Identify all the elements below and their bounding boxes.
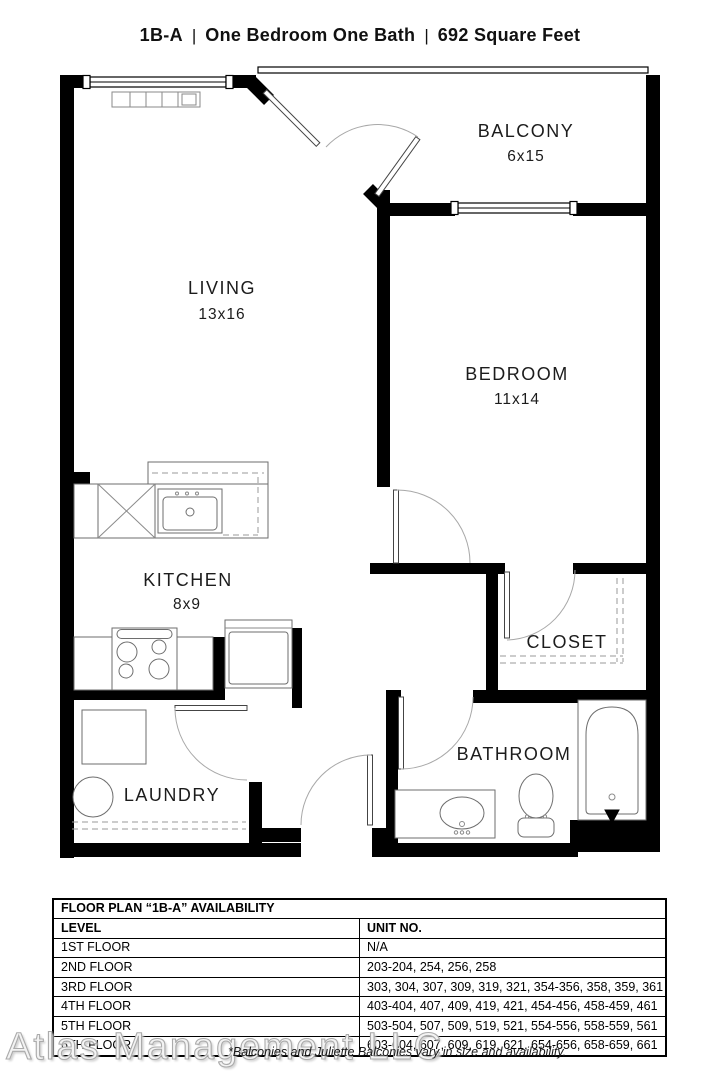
- stove: [74, 628, 213, 690]
- balcony-door: [263, 90, 420, 197]
- units-cell: N/A: [360, 938, 667, 958]
- table-row: 3RD FLOOR 303, 304, 307, 309, 319, 321, …: [53, 977, 666, 997]
- dishwasher: [98, 484, 155, 538]
- plan-description: One Bedroom One Bath: [205, 25, 415, 46]
- units-cell: 403-404, 407, 409, 419, 421, 454-456, 45…: [360, 997, 667, 1017]
- balcony-dims: 6x15: [507, 148, 545, 165]
- bathtub: [578, 700, 646, 823]
- level-cell: 3RD FLOOR: [53, 977, 360, 997]
- closet-label: CLOSET: [526, 632, 607, 652]
- floor-plan-drawing: LIVING 13x16 BALCONY 6x15 BEDROOM 11x14 …: [0, 60, 720, 875]
- title-separator: |: [424, 26, 428, 46]
- units-cell: 203-204, 254, 256, 258: [360, 958, 667, 978]
- laundry-door: [175, 706, 247, 781]
- plan-code: 1B-A: [140, 25, 183, 46]
- closet-door: [505, 570, 576, 640]
- laundry-shelf: [72, 822, 246, 829]
- availability-title-row: FLOOR PLAN “1B-A” AVAILABILITY: [53, 899, 666, 919]
- bedroom-window: [451, 202, 577, 215]
- laundry-label: LAUNDRY: [124, 785, 220, 805]
- refrigerator: [225, 620, 292, 688]
- bedroom-dims: 11x14: [494, 391, 540, 408]
- kitchen-dims: 8x9: [173, 596, 201, 613]
- bathroom-label: BATHROOM: [457, 744, 572, 764]
- balcony-railing: [258, 67, 648, 73]
- level-cell: 2ND FLOOR: [53, 958, 360, 978]
- level-cell: 4TH FLOOR: [53, 997, 360, 1017]
- toilet: [518, 774, 554, 837]
- bedroom-door: [394, 490, 471, 563]
- balcony-note: *Balconies and Juliette Balconies vary i…: [228, 1045, 566, 1059]
- page-title: 1B-A | One Bedroom One Bath | 692 Square…: [0, 25, 720, 46]
- kitchen-label: KITCHEN: [143, 570, 233, 590]
- vanity-sink: [395, 790, 495, 838]
- washer: [82, 710, 146, 764]
- availability-title: FLOOR PLAN “1B-A” AVAILABILITY: [53, 899, 666, 919]
- title-separator: |: [192, 26, 196, 46]
- table-row: 4TH FLOOR 403-404, 407, 409, 419, 421, 4…: [53, 997, 666, 1017]
- living-label: LIVING: [188, 278, 256, 298]
- plan-area: 692 Square Feet: [438, 25, 581, 46]
- water-heater: [73, 777, 113, 817]
- level-column-header: LEVEL: [53, 919, 360, 939]
- kitchen-sink: [158, 489, 222, 533]
- entry-door: [301, 755, 373, 825]
- units-cell: 303, 304, 307, 309, 319, 321, 354-356, 3…: [360, 977, 667, 997]
- bedroom-label: BEDROOM: [465, 364, 569, 384]
- baseboard-heater: [112, 92, 200, 107]
- level-cell: 1ST FLOOR: [53, 938, 360, 958]
- table-row: 2ND FLOOR 203-204, 254, 256, 258: [53, 958, 666, 978]
- table-row: 1ST FLOOR N/A: [53, 938, 666, 958]
- balcony-label: BALCONY: [478, 121, 575, 141]
- floor-plan-page: 1B-A | One Bedroom One Bath | 692 Square…: [0, 0, 720, 1080]
- living-dims: 13x16: [198, 306, 245, 323]
- availability-header-row: LEVEL UNIT NO.: [53, 919, 666, 939]
- unit-column-header: UNIT NO.: [360, 919, 667, 939]
- living-window: [83, 76, 233, 89]
